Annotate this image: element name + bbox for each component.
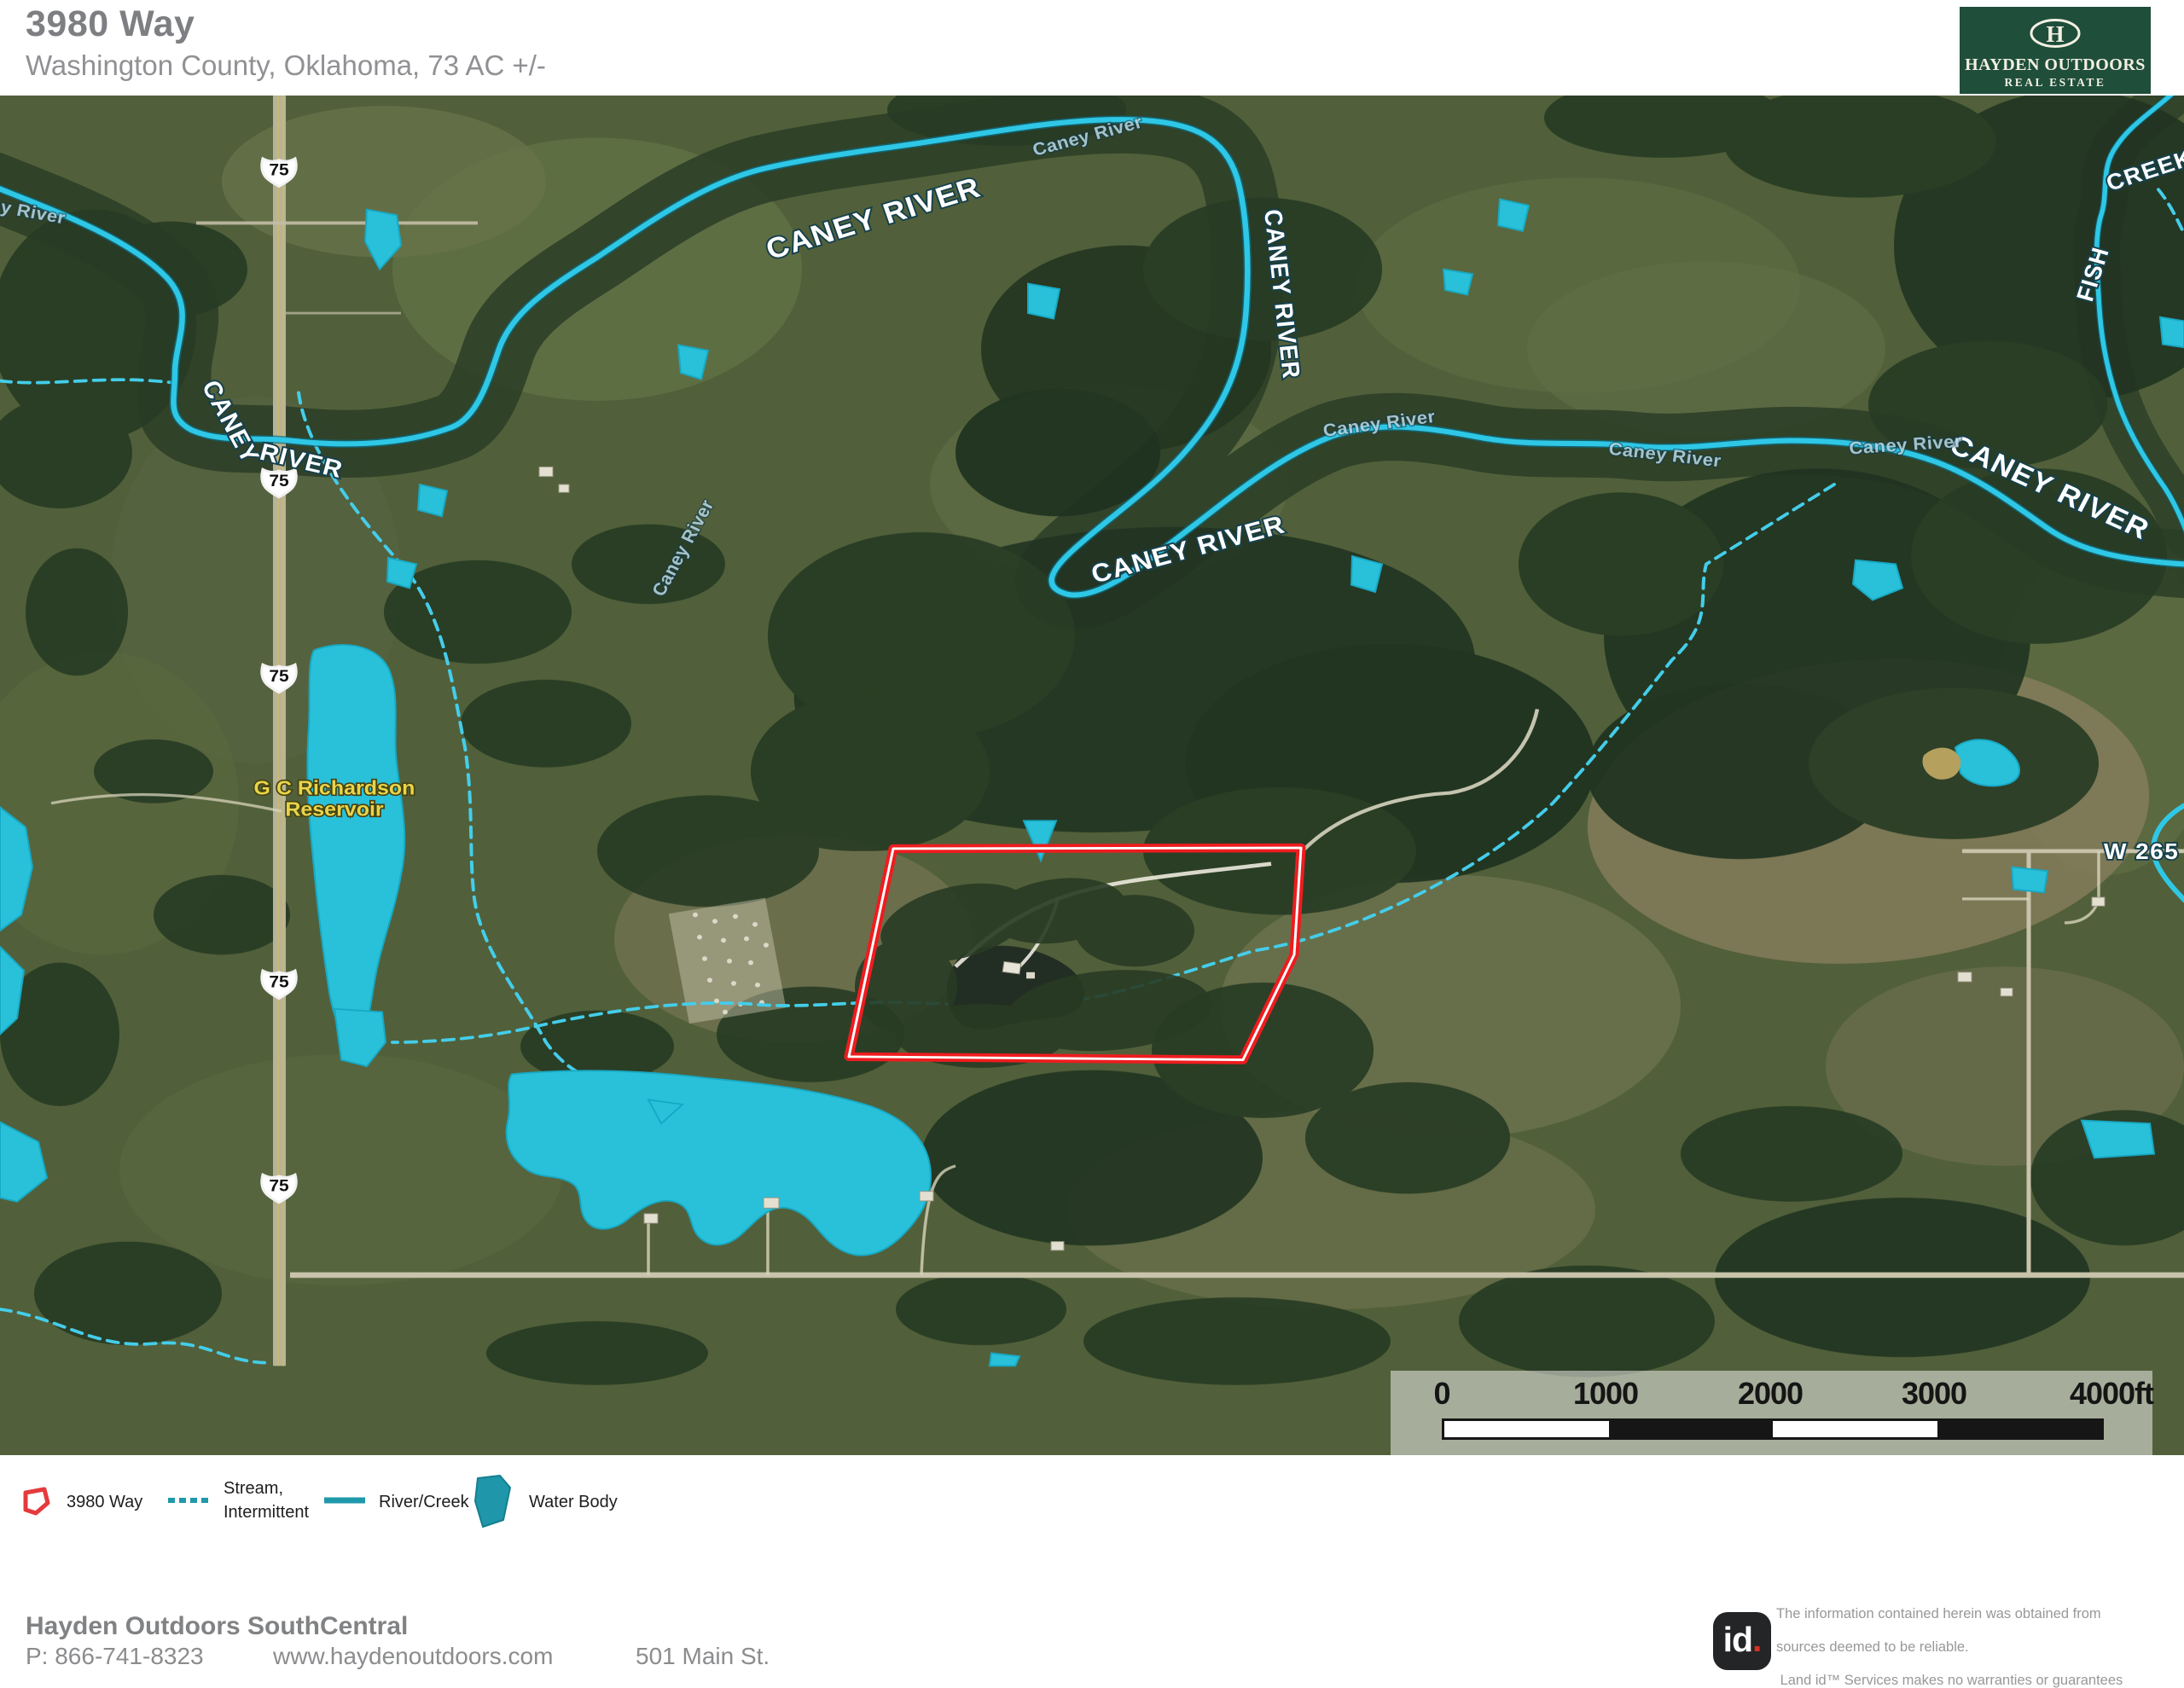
- map-scale-bar: 0 1000 2000 3000 4000ft: [1391, 1371, 2152, 1455]
- office-phone: P: 866-741-8323: [26, 1643, 204, 1670]
- water-body-icon: [471, 1474, 517, 1530]
- scale-tick: 2000: [1738, 1376, 1803, 1412]
- scale-tick: 3000: [1902, 1376, 1966, 1412]
- svg-text:75: 75: [269, 161, 288, 179]
- svg-text:75: 75: [269, 667, 288, 685]
- reservoir-label-line1: G C Richardson: [254, 777, 415, 799]
- land-id-logo-dot: .: [1752, 1620, 1761, 1659]
- map-canvas: 75 75 75 75 75: [0, 96, 2184, 1455]
- page-subtitle: Washington County, Oklahoma, 73 AC +/-: [26, 49, 546, 82]
- svg-text:75: 75: [269, 1177, 288, 1195]
- map-legend: 3980 Way Stream, Intermittent River/Cree…: [0, 1455, 2184, 1578]
- road-label-w265: W 265: [2104, 838, 2179, 864]
- scale-tick: 4000ft: [2070, 1376, 2153, 1412]
- property-map-flyer: 3980 Way Washington County, Oklahoma, 73…: [0, 0, 2184, 1688]
- logo-monogram: H: [2046, 21, 2064, 47]
- office-name: Hayden Outdoors SouthCentral: [26, 1612, 408, 1641]
- legend-stream-label-line2: Intermittent: [224, 1503, 309, 1523]
- logo-tagline: REAL ESTATE: [2005, 76, 2106, 89]
- disclaimer-text: The information contained herein was obt…: [1776, 1606, 2123, 1688]
- svg-text:75: 75: [269, 472, 288, 490]
- logo-name: HAYDEN OUTDOORS: [1965, 55, 2146, 74]
- hayden-outdoors-logo: H HAYDEN OUTDOORS REAL ESTATE: [1960, 7, 2151, 94]
- legend-stream-label-line1: Stream,: [224, 1479, 283, 1499]
- footer: Hayden Outdoors SouthCentral P: 866-741-…: [0, 1578, 2184, 1688]
- aerial-map[interactable]: 75 75 75 75 75: [0, 96, 2184, 1455]
- page-title: 3980 Way: [26, 3, 195, 45]
- legend-river-label: River/Creek: [379, 1493, 469, 1512]
- property-building: [1002, 961, 1021, 974]
- land-id-logo-text: id: [1723, 1620, 1752, 1659]
- svg-text:75: 75: [269, 973, 288, 991]
- property-outline-icon: [19, 1484, 53, 1518]
- office-website[interactable]: www.haydenoutdoors.com: [273, 1643, 553, 1670]
- scale-tick: 1000: [1573, 1376, 1638, 1412]
- office-address: 501 Main St.: [636, 1643, 770, 1670]
- river-creek-icon: [322, 1494, 367, 1506]
- reservoir-label-line2: Reservoir: [285, 798, 384, 821]
- hayden-outdoors-logo-art: H HAYDEN OUTDOORS REAL ESTATE: [1960, 7, 2151, 94]
- legend-water-label: Water Body: [529, 1493, 618, 1512]
- stream-intermittent-icon: [166, 1494, 213, 1506]
- header: 3980 Way Washington County, Oklahoma, 73…: [0, 0, 2184, 96]
- legend-property-label: 3980 Way: [67, 1493, 142, 1512]
- land-id-logo: id.: [1713, 1612, 1771, 1670]
- scale-tick: 0: [1433, 1376, 1449, 1412]
- scale-bar-segments: [1442, 1418, 2104, 1440]
